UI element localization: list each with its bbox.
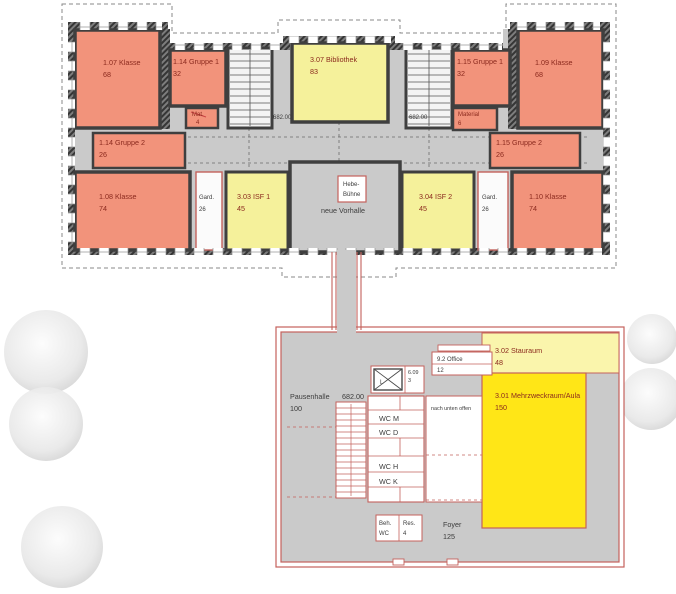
level-mark-right: 682.00 bbox=[409, 115, 428, 121]
area-office: 12 bbox=[437, 368, 444, 374]
area-1-14-gruppe-1: 32 bbox=[173, 69, 181, 78]
label-aula: 3.01 Mehrzweckraum/Aula bbox=[495, 391, 580, 400]
label-garderobe-east: Gard. bbox=[482, 195, 497, 201]
label-1-08-klasse: 1.08 Klasse bbox=[99, 192, 137, 201]
label-stauraum: 3.02 Stauraum bbox=[495, 346, 542, 355]
entrance-mark bbox=[447, 559, 458, 565]
upper-building: 1.07 Klasse 68 1.14 Gruppe 1 32 Mat. 4 3… bbox=[62, 4, 616, 277]
area-bibliothek: 83 bbox=[310, 67, 318, 76]
wc-block bbox=[368, 396, 424, 502]
area-stauraum: 48 bbox=[495, 358, 503, 367]
label-1-15-gruppe-1: 1.15 Gruppe 1 bbox=[457, 57, 503, 66]
label-1-10-klasse: 1.10 Klasse bbox=[529, 192, 567, 201]
label-office: 9.2 Office bbox=[437, 357, 463, 363]
area-foyer: 125 bbox=[443, 532, 455, 541]
label-wc-h: WC H bbox=[379, 462, 398, 471]
label-wc-m: WC M bbox=[379, 414, 399, 423]
label-void: nach unten offen bbox=[431, 406, 471, 412]
room-1-10-klasse bbox=[512, 172, 603, 250]
area-isf-1: 45 bbox=[237, 204, 245, 213]
level-mark-pausenhalle: 682.00 bbox=[342, 392, 364, 401]
hebebuehne-box bbox=[338, 176, 366, 202]
label-beh-wc-2: WC bbox=[379, 531, 390, 537]
label-wc-d: WC D bbox=[379, 428, 398, 437]
tree bbox=[21, 506, 103, 588]
connecting-corridor bbox=[332, 250, 361, 334]
label-bibliothek: 3.07 Bibliothek bbox=[310, 55, 358, 64]
area-1-09-klasse: 68 bbox=[535, 70, 543, 79]
label-res: Res. bbox=[403, 521, 416, 527]
floor-plan-svg: 1.07 Klasse 68 1.14 Gruppe 1 32 Mat. 4 3… bbox=[0, 0, 676, 594]
level-mark-left: 682.00 bbox=[273, 115, 292, 121]
label-1-15-gruppe-2: 1.15 Gruppe 2 bbox=[496, 138, 542, 147]
floor-plan-page: 1.07 Klasse 68 1.14 Gruppe 1 32 Mat. 4 3… bbox=[0, 0, 676, 594]
behwc-res-block bbox=[376, 515, 422, 541]
tree bbox=[4, 310, 88, 394]
lower-building: Pausenhalle 100 682.00 L 6.09 3 9.2 Offi… bbox=[276, 327, 624, 567]
label-1-14-gruppe-1: 1.14 Gruppe 1 bbox=[173, 57, 219, 66]
label-wc-k: WC K bbox=[379, 477, 398, 486]
area-isf-2: 45 bbox=[419, 204, 427, 213]
tree bbox=[9, 387, 83, 461]
label-1-07-klasse: 1.07 Klasse bbox=[103, 58, 141, 67]
label-foyer: Foyer bbox=[443, 520, 462, 529]
room-isf-2 bbox=[402, 172, 474, 250]
area-garderobe-east: 26 bbox=[482, 207, 489, 213]
label-1-09-klasse: 1.09 Klasse bbox=[535, 58, 573, 67]
area-garderobe-west: 26 bbox=[199, 207, 206, 213]
area-6-09: 3 bbox=[408, 378, 411, 384]
label-material: Material bbox=[458, 112, 479, 118]
area-1-15-gruppe-2: 26 bbox=[496, 150, 504, 159]
label-beh-wc-1: Beh. bbox=[379, 521, 392, 527]
label-isf-1: 3.03 ISF 1 bbox=[237, 192, 270, 201]
stair-pausenhalle bbox=[336, 402, 366, 498]
tree bbox=[620, 368, 676, 430]
area-1-08-klasse: 74 bbox=[99, 204, 107, 213]
stairwell-west bbox=[228, 48, 272, 128]
label-garderobe-west: Gard. bbox=[199, 195, 214, 201]
label-hebebuehne-1: Hebe- bbox=[343, 182, 359, 188]
label-neue-vorhalle: neue Vorhalle bbox=[321, 206, 365, 215]
room-isf-1 bbox=[226, 172, 288, 250]
area-1-10-klasse: 74 bbox=[529, 204, 537, 213]
label-hebebuehne-2: Bühne bbox=[343, 192, 361, 198]
room-1-08-klasse bbox=[75, 172, 190, 250]
area-1-14-gruppe-2: 26 bbox=[99, 150, 107, 159]
label-pausenhalle: Pausenhalle bbox=[290, 392, 330, 401]
entrance-mark bbox=[393, 559, 404, 565]
tree bbox=[627, 314, 676, 364]
corridor-floor bbox=[337, 250, 356, 334]
area-aula: 150 bbox=[495, 403, 507, 412]
room-1-07-klasse bbox=[75, 30, 160, 128]
label-6-09: 6.09 bbox=[408, 370, 419, 376]
room-mat bbox=[186, 108, 218, 128]
label-mat: Mat. bbox=[192, 112, 204, 118]
room-1-09-klasse bbox=[518, 30, 603, 128]
label-1-14-gruppe-2: 1.14 Gruppe 2 bbox=[99, 138, 145, 147]
area-1-15-gruppe-1: 32 bbox=[457, 69, 465, 78]
area-1-07-klasse: 68 bbox=[103, 70, 111, 79]
area-pausenhalle: 100 bbox=[290, 404, 302, 413]
label-isf-2: 3.04 ISF 2 bbox=[419, 192, 452, 201]
office-shelf bbox=[438, 345, 490, 351]
